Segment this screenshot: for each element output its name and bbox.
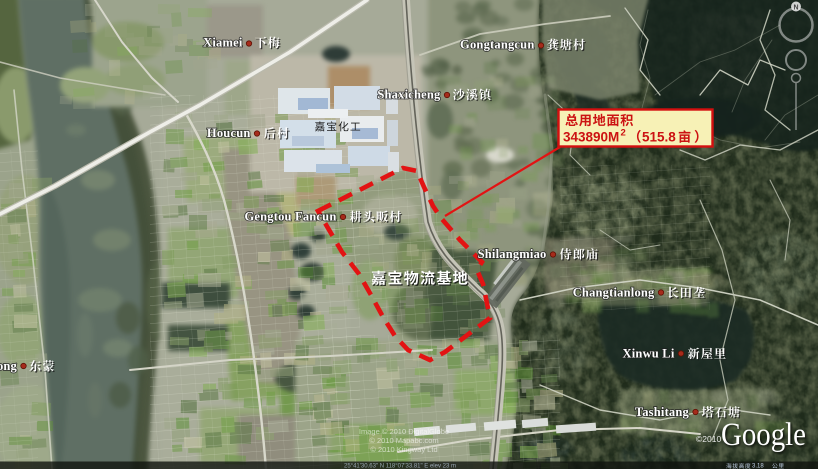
- svg-text:515.8: 515.8: [642, 130, 676, 145]
- svg-text:Tashitang: Tashitang: [635, 405, 690, 419]
- svg-text:© 2010 Kingway Ltd: © 2010 Kingway Ltd: [370, 445, 437, 454]
- svg-text:Xinwu Li: Xinwu Li: [623, 347, 675, 361]
- svg-text:Shaxicheng: Shaxicheng: [377, 88, 441, 102]
- svg-text:ong: ong: [0, 359, 18, 373]
- svg-text:©2010: ©2010: [696, 434, 721, 444]
- svg-text:Gengtou Fancun: Gengtou Fancun: [244, 210, 336, 224]
- svg-text:25°41'30.63" N 118°07'33.81": 25°41'30.63" N 118°07'33.81" E elev 23 m: [344, 464, 456, 469]
- svg-text:N: N: [793, 5, 798, 12]
- svg-text:3.18: 3.18: [752, 464, 764, 469]
- svg-text:Xiamei: Xiamei: [203, 36, 243, 50]
- svg-text:343890M: 343890M: [563, 130, 619, 145]
- svg-text:Houcun: Houcun: [207, 126, 251, 140]
- svg-text:Image © 2010 DigitalGlobe: Image © 2010 DigitalGlobe: [359, 427, 449, 436]
- svg-text:Changtianlong: Changtianlong: [573, 286, 655, 300]
- svg-text:Shilangmiao: Shilangmiao: [478, 247, 547, 261]
- svg-text:© 2010 Mapabc.com: © 2010 Mapabc.com: [369, 436, 438, 445]
- svg-text:Gongtangcun: Gongtangcun: [460, 38, 534, 52]
- svg-text:2: 2: [621, 128, 626, 139]
- svg-text:Google: Google: [721, 417, 806, 453]
